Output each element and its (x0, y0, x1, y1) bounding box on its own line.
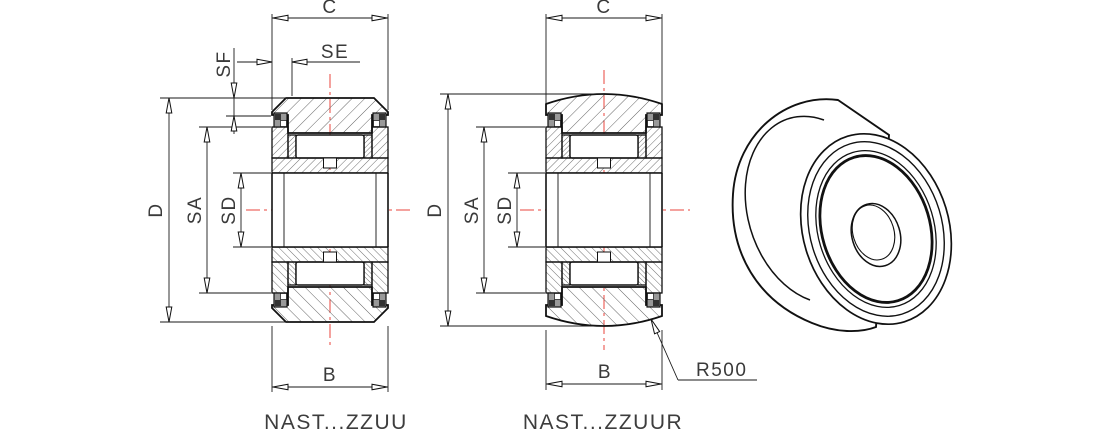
caption-zzuur: NAST...ZZUUR (523, 411, 683, 434)
bearing-section (272, 98, 388, 322)
drawing-canvas: C SE SF D SA SD B NAST...ZZUU (0, 0, 1094, 434)
dim-label-sa: SA (185, 196, 206, 224)
caption-zzuu: NAST...ZZUU (264, 411, 408, 434)
dim-label-sd: SD (219, 195, 240, 224)
dim-label-c: C (596, 0, 611, 18)
dim-label-sf: SF (214, 50, 235, 77)
dim-label-sd: SD (495, 195, 516, 224)
section-view-zzuur: C D SA SD B R500 NAST...ZZUUR (425, 0, 757, 434)
dim-label-sa: SA (462, 196, 483, 224)
dim-label-d: D (425, 202, 446, 217)
section-view-zzuu: C SE SF D SA SD B NAST...ZZUU (146, 0, 414, 434)
dim-label-se: SE (321, 42, 349, 63)
bearing-section-crowned (546, 94, 662, 326)
isometric-view (733, 99, 975, 343)
technical-drawing: C SE SF D SA SD B NAST...ZZUU (0, 0, 1094, 434)
dim-label-d: D (146, 202, 167, 217)
dim-label-b: B (323, 365, 337, 386)
dim-label-c: C (322, 0, 337, 18)
dim-label-b: B (598, 362, 612, 383)
crown-radius-label: R500 (696, 360, 747, 381)
